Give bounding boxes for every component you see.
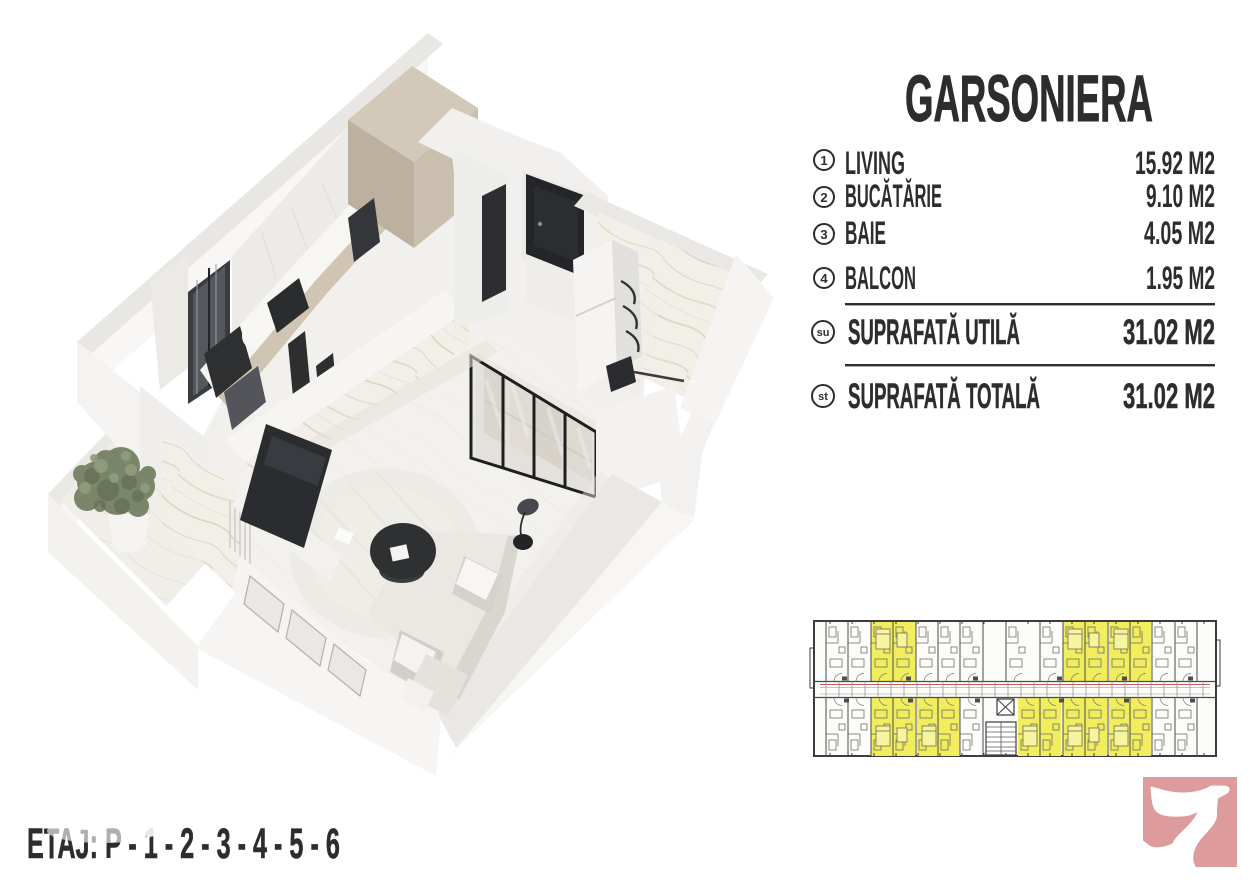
svg-text:st: st	[818, 391, 828, 403]
svg-text:1: 1	[820, 153, 827, 168]
svg-text:SUPRAFATĂ TOTALĂ: SUPRAFATĂ TOTALĂ	[848, 377, 1040, 416]
svg-text:BALCON: BALCON	[845, 261, 916, 296]
svg-text:31.02 M2: 31.02 M2	[1123, 378, 1215, 416]
svg-text:SUPRAFATĂ UTILĂ: SUPRAFATĂ UTILĂ	[848, 313, 1020, 352]
svg-text:GARSONIERA: GARSONIERA	[905, 63, 1153, 136]
svg-text:BAIE: BAIE	[845, 217, 886, 252]
svg-text:BUCĂTĂRIE: BUCĂTĂRIE	[845, 178, 942, 214]
svg-text:15.92 M2: 15.92 M2	[1135, 145, 1215, 181]
svg-text:3: 3	[820, 227, 827, 242]
svg-text:2: 2	[820, 190, 827, 205]
svg-text:31.02 M2: 31.02 M2	[1123, 314, 1215, 352]
svg-text:4: 4	[820, 271, 828, 286]
svg-text:4.05 M2: 4.05 M2	[1144, 215, 1215, 251]
svg-text:9.10 M2: 9.10 M2	[1146, 178, 1215, 214]
svg-text:su: su	[817, 327, 830, 339]
svg-text:1.95 M2: 1.95 M2	[1146, 260, 1215, 296]
svg-text:LIVING: LIVING	[845, 144, 905, 181]
